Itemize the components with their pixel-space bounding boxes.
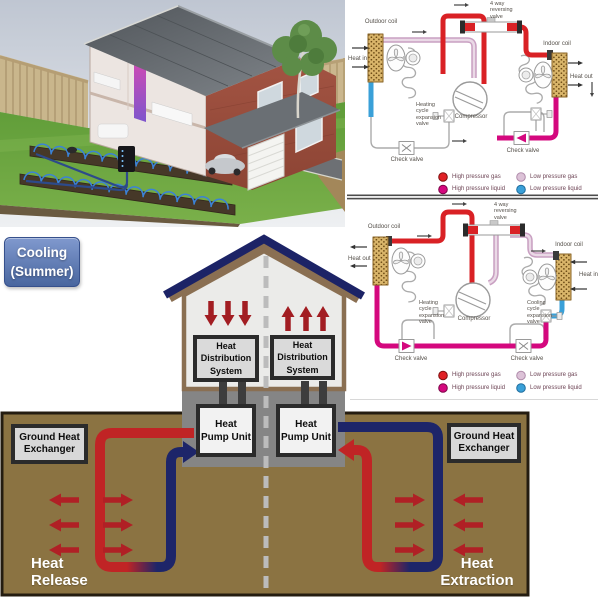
fan-icon xyxy=(387,45,420,71)
heat-pump-unit-right: Heat Pump Unit xyxy=(276,404,336,457)
expansion-valve-icon xyxy=(531,108,552,120)
legend-hp-liquid: High pressure liquid xyxy=(452,186,505,192)
season-badge: Cooling (Summer) xyxy=(4,237,80,287)
robot-mower xyxy=(67,147,77,153)
expansion-valve-label: Heating cycle expansion valve xyxy=(419,300,449,325)
compressor-label: Compressor xyxy=(448,316,500,323)
refrigeration-cycle-heating xyxy=(347,3,598,199)
ground-heat-exchanger-right: Ground Heat Exchanger xyxy=(447,423,521,463)
check-valve-label: Check valve xyxy=(384,157,430,164)
compressor-icon xyxy=(453,82,487,116)
check-valve-icon xyxy=(399,142,414,155)
pipe-cap xyxy=(553,251,559,260)
flow-direction-mark xyxy=(454,3,469,7)
heat-out-label: Heat out xyxy=(570,74,600,81)
legend-hp-gas: High pressure gas xyxy=(452,372,501,378)
flow-direction-mark xyxy=(452,202,467,206)
cooling-down-arrows xyxy=(205,301,252,326)
separator-line xyxy=(350,399,598,400)
flow-direction-mark xyxy=(452,139,467,143)
legend-lp-gas: Low pressure gas xyxy=(530,372,577,378)
heat-in-label: Heat in xyxy=(348,56,378,63)
legend-lp-liquid: Low pressure liquid xyxy=(530,385,582,391)
figure-artwork xyxy=(0,0,600,600)
expansion-valve-label: Cooling cycle expansion valve xyxy=(527,300,557,325)
box-label: Heat Distribution System xyxy=(274,339,331,377)
indoor-coil xyxy=(556,254,571,300)
indoor-coil-label: Indoor coil xyxy=(546,242,592,249)
compressor-label: Compressor xyxy=(445,114,497,121)
photo-house-ground-loop xyxy=(0,0,345,227)
refrigeration-cycle-cooling xyxy=(350,202,598,400)
outdoor-coil-label: Outdoor coil xyxy=(358,19,404,26)
legend-lp-gas: Low pressure gas xyxy=(530,174,577,180)
heat-distribution-system-left: Heat Distribution System xyxy=(193,335,259,382)
heat-extraction-label: Heat Extraction xyxy=(426,555,528,589)
reversing-valve-label: 4 way reversing valve xyxy=(494,202,530,221)
expansion-valve-label: Heating cycle expansion valve xyxy=(416,102,446,127)
heat-pump-unit-left: Heat Pump Unit xyxy=(196,404,256,457)
legend-lp-liquid: Low pressure liquid xyxy=(530,186,582,192)
check-valve-icon xyxy=(399,340,414,353)
ground-heat-exchanger-left: Ground Heat Exchanger xyxy=(11,424,88,464)
check-valve-icon xyxy=(516,340,531,353)
check-valve-label: Check valve xyxy=(500,148,546,155)
cross-section-diagram xyxy=(2,239,528,595)
check-valve-icon xyxy=(514,132,529,145)
ground-source-heat-pump-figure: Cooling (Summer) 4 way reversing valve O… xyxy=(0,0,600,600)
heat-distribution-system-right: Heat Distribution System xyxy=(270,335,335,380)
check-valve-label: Check valve xyxy=(388,356,434,363)
box-label: Heat Pump Unit xyxy=(280,418,332,444)
box-label: Ground Heat Exchanger xyxy=(15,432,84,457)
flow-direction-mark xyxy=(417,234,432,238)
fan-icon xyxy=(519,62,552,88)
heating-up-arrows xyxy=(282,306,330,331)
heat-release-label: Heat Release xyxy=(31,555,105,589)
box-label: Heat Pump Unit xyxy=(200,418,252,444)
box-label: Heat Distribution System xyxy=(197,340,255,378)
flow-direction-mark xyxy=(412,30,427,34)
flow-direction-mark xyxy=(590,82,594,97)
heat-out-label: Heat out xyxy=(348,256,380,263)
compressor-icon xyxy=(456,283,490,317)
box-label: Ground Heat Exchanger xyxy=(451,431,517,456)
legend-hp-gas: High pressure gas xyxy=(452,174,501,180)
reversing-valve-label: 4 way reversing valve xyxy=(490,1,526,20)
sofa xyxy=(98,124,128,138)
fan-icon xyxy=(523,264,556,290)
heat-in-label: Heat in xyxy=(579,272,600,279)
indoor-coil-label: Indoor coil xyxy=(534,41,580,48)
indoor-coil xyxy=(552,53,567,97)
outdoor-coil-label: Outdoor coil xyxy=(361,224,407,231)
heat-pump-appliance xyxy=(118,146,135,172)
check-valve-label: Check valve xyxy=(504,356,550,363)
separator-line xyxy=(347,195,598,197)
legend-hp-liquid: High pressure liquid xyxy=(452,385,505,391)
